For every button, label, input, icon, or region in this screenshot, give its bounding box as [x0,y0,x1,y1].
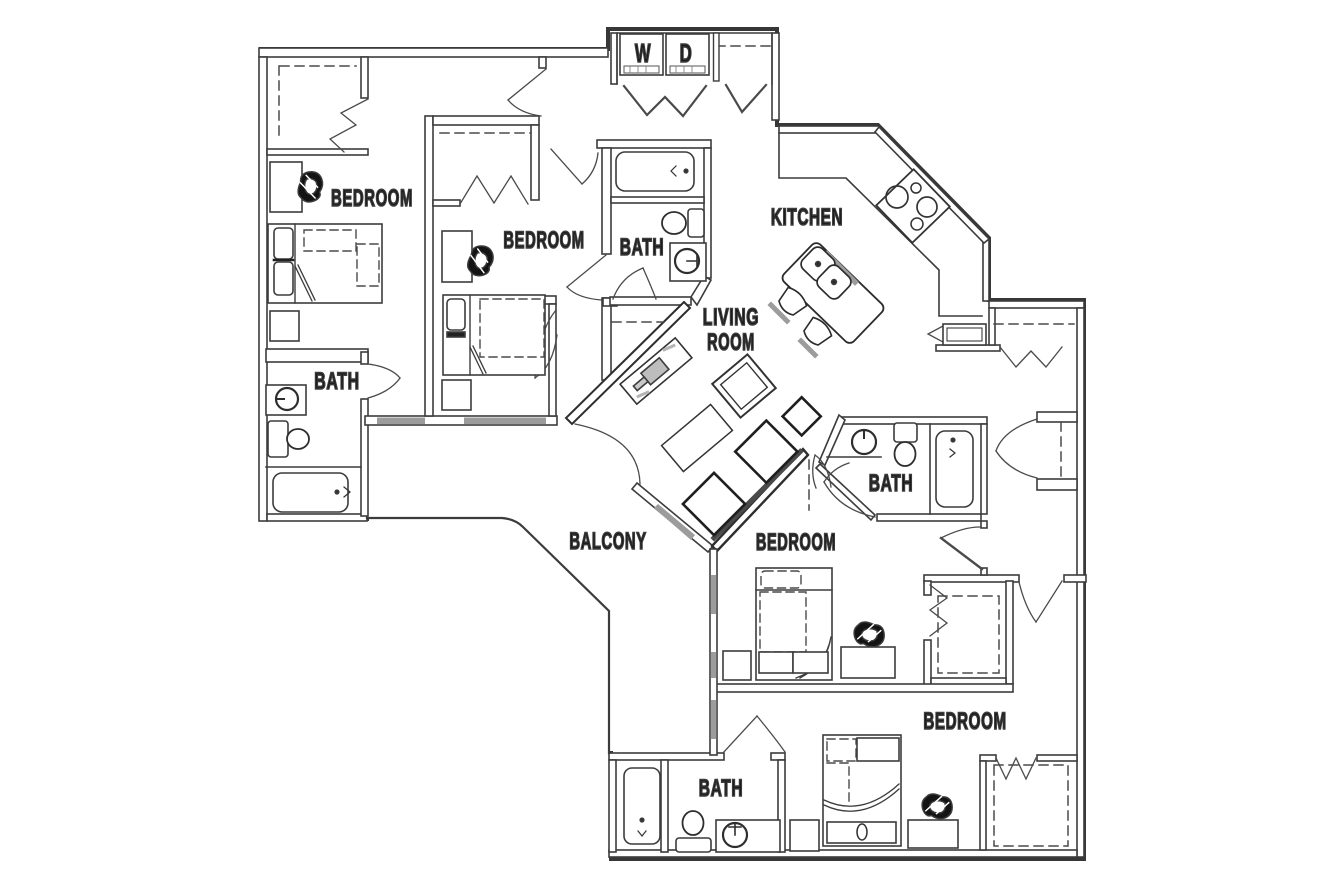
svg-text:LIVING: LIVING [703,305,759,331]
svg-text:BATH: BATH [869,471,914,497]
svg-text:BATH: BATH [620,235,665,261]
svg-text:BALCONY: BALCONY [569,529,646,555]
svg-text:KITCHEN: KITCHEN [771,205,843,231]
svg-text:D: D [680,38,693,68]
svg-text:BATH: BATH [699,776,744,802]
svg-text:BEDROOM: BEDROOM [756,529,836,556]
svg-text:ROOM: ROOM [707,329,755,356]
svg-text:W: W [635,38,651,68]
svg-text:BEDROOM: BEDROOM [331,186,413,212]
svg-text:BEDROOM: BEDROOM [923,709,1006,735]
svg-text:BATH: BATH [314,369,359,395]
svg-text:BEDROOM: BEDROOM [503,228,584,255]
